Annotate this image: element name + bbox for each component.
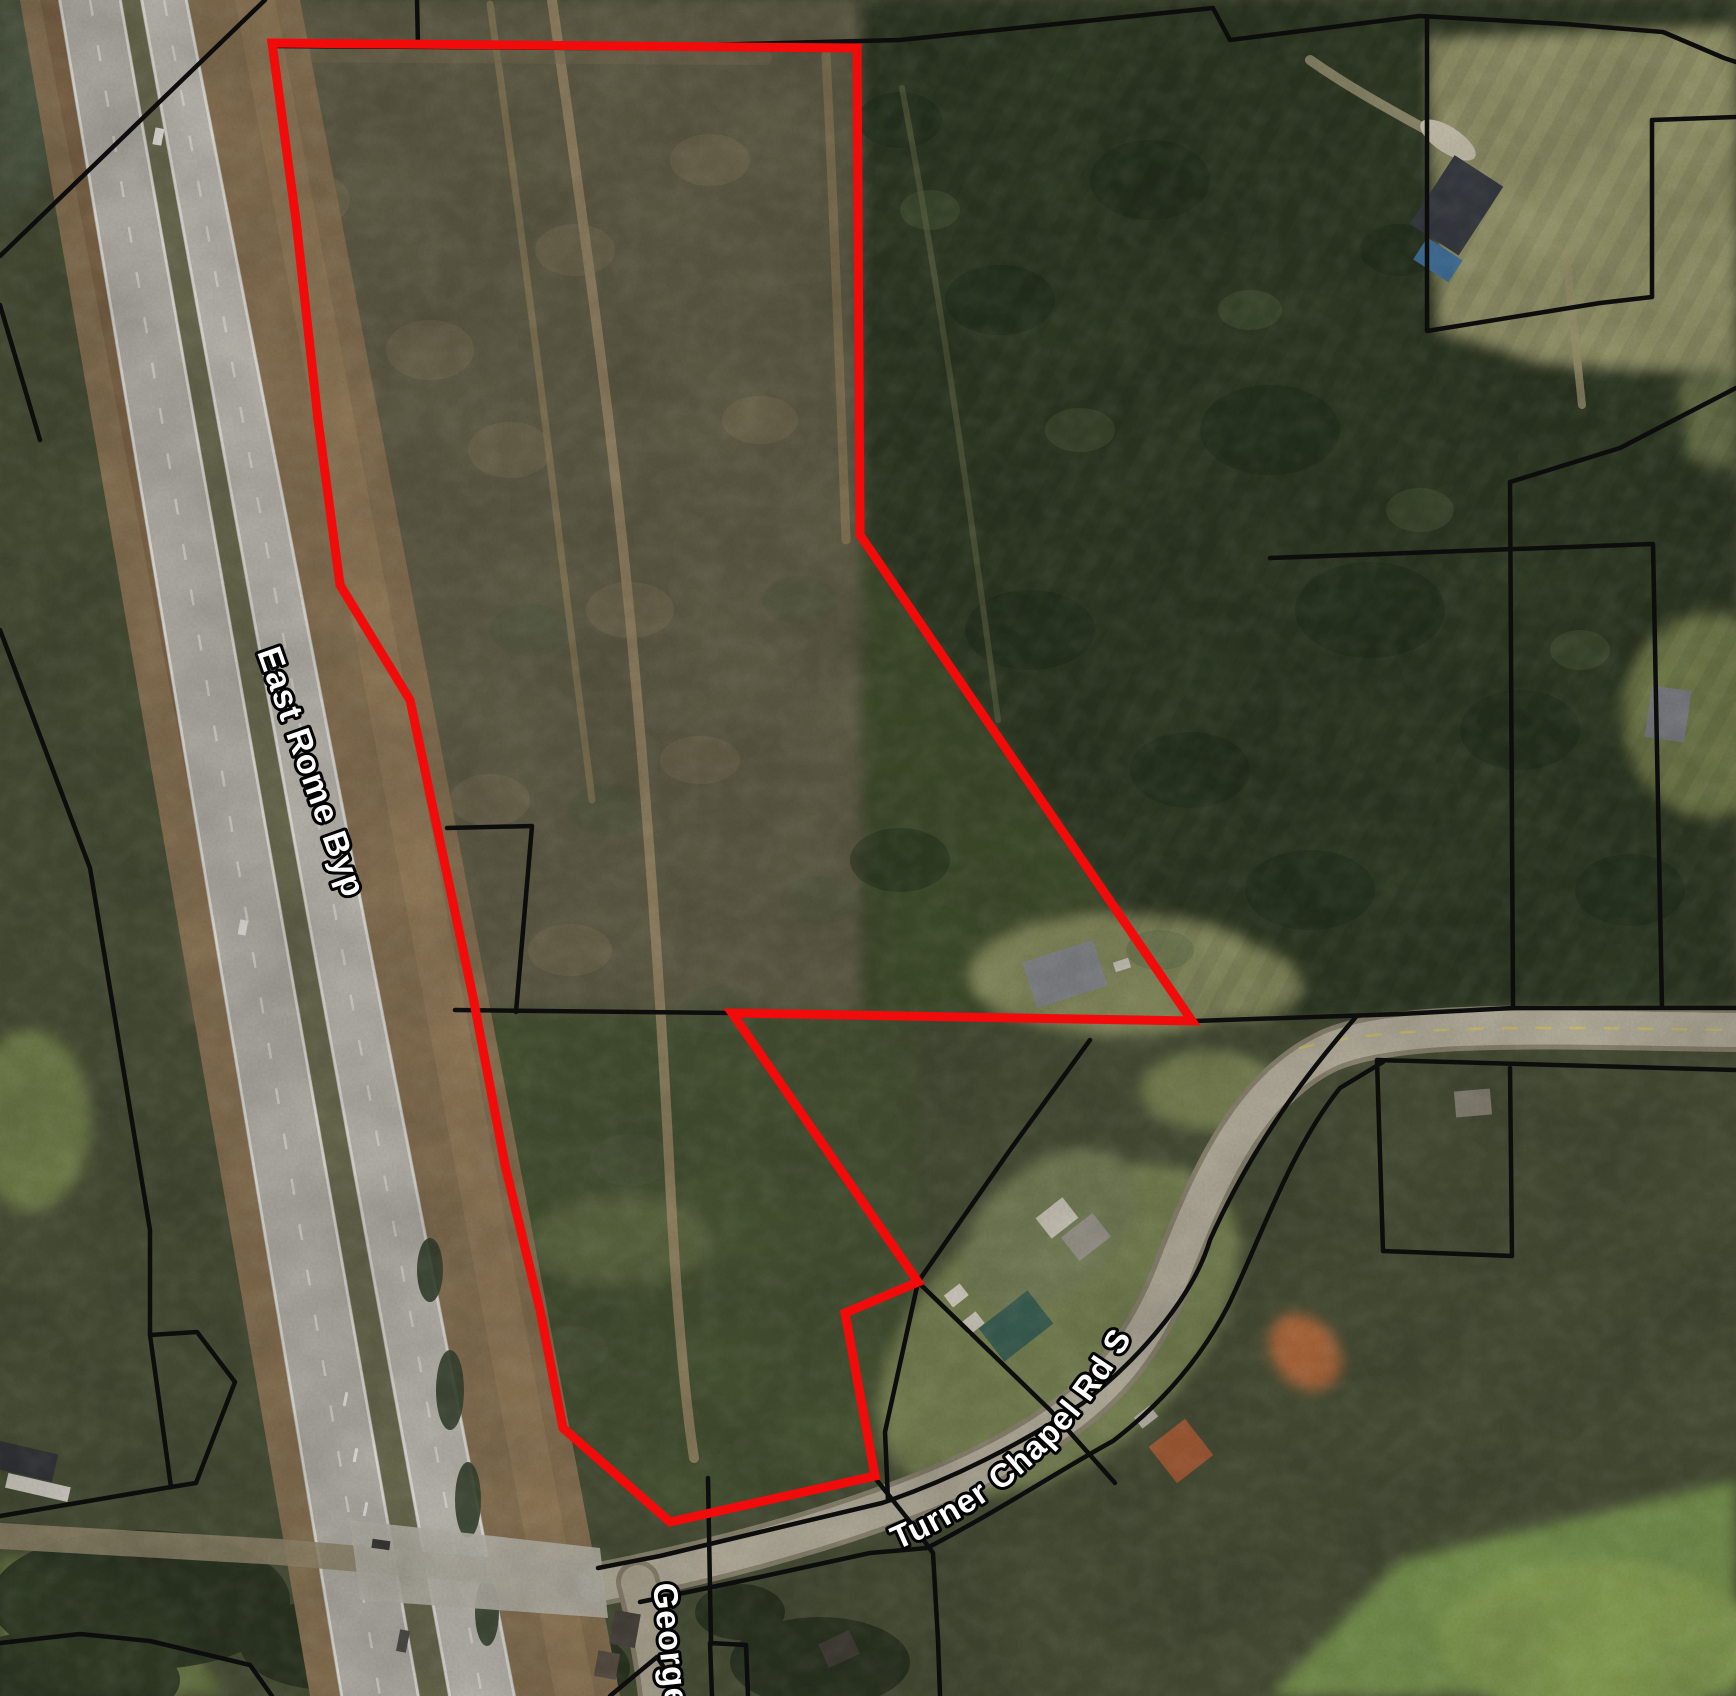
aerial-imagery: East Rome Byp Turner Chapel Rd SE George xyxy=(0,0,1736,1696)
map-canvas[interactable]: East Rome Byp Turner Chapel Rd SE George xyxy=(0,0,1736,1696)
